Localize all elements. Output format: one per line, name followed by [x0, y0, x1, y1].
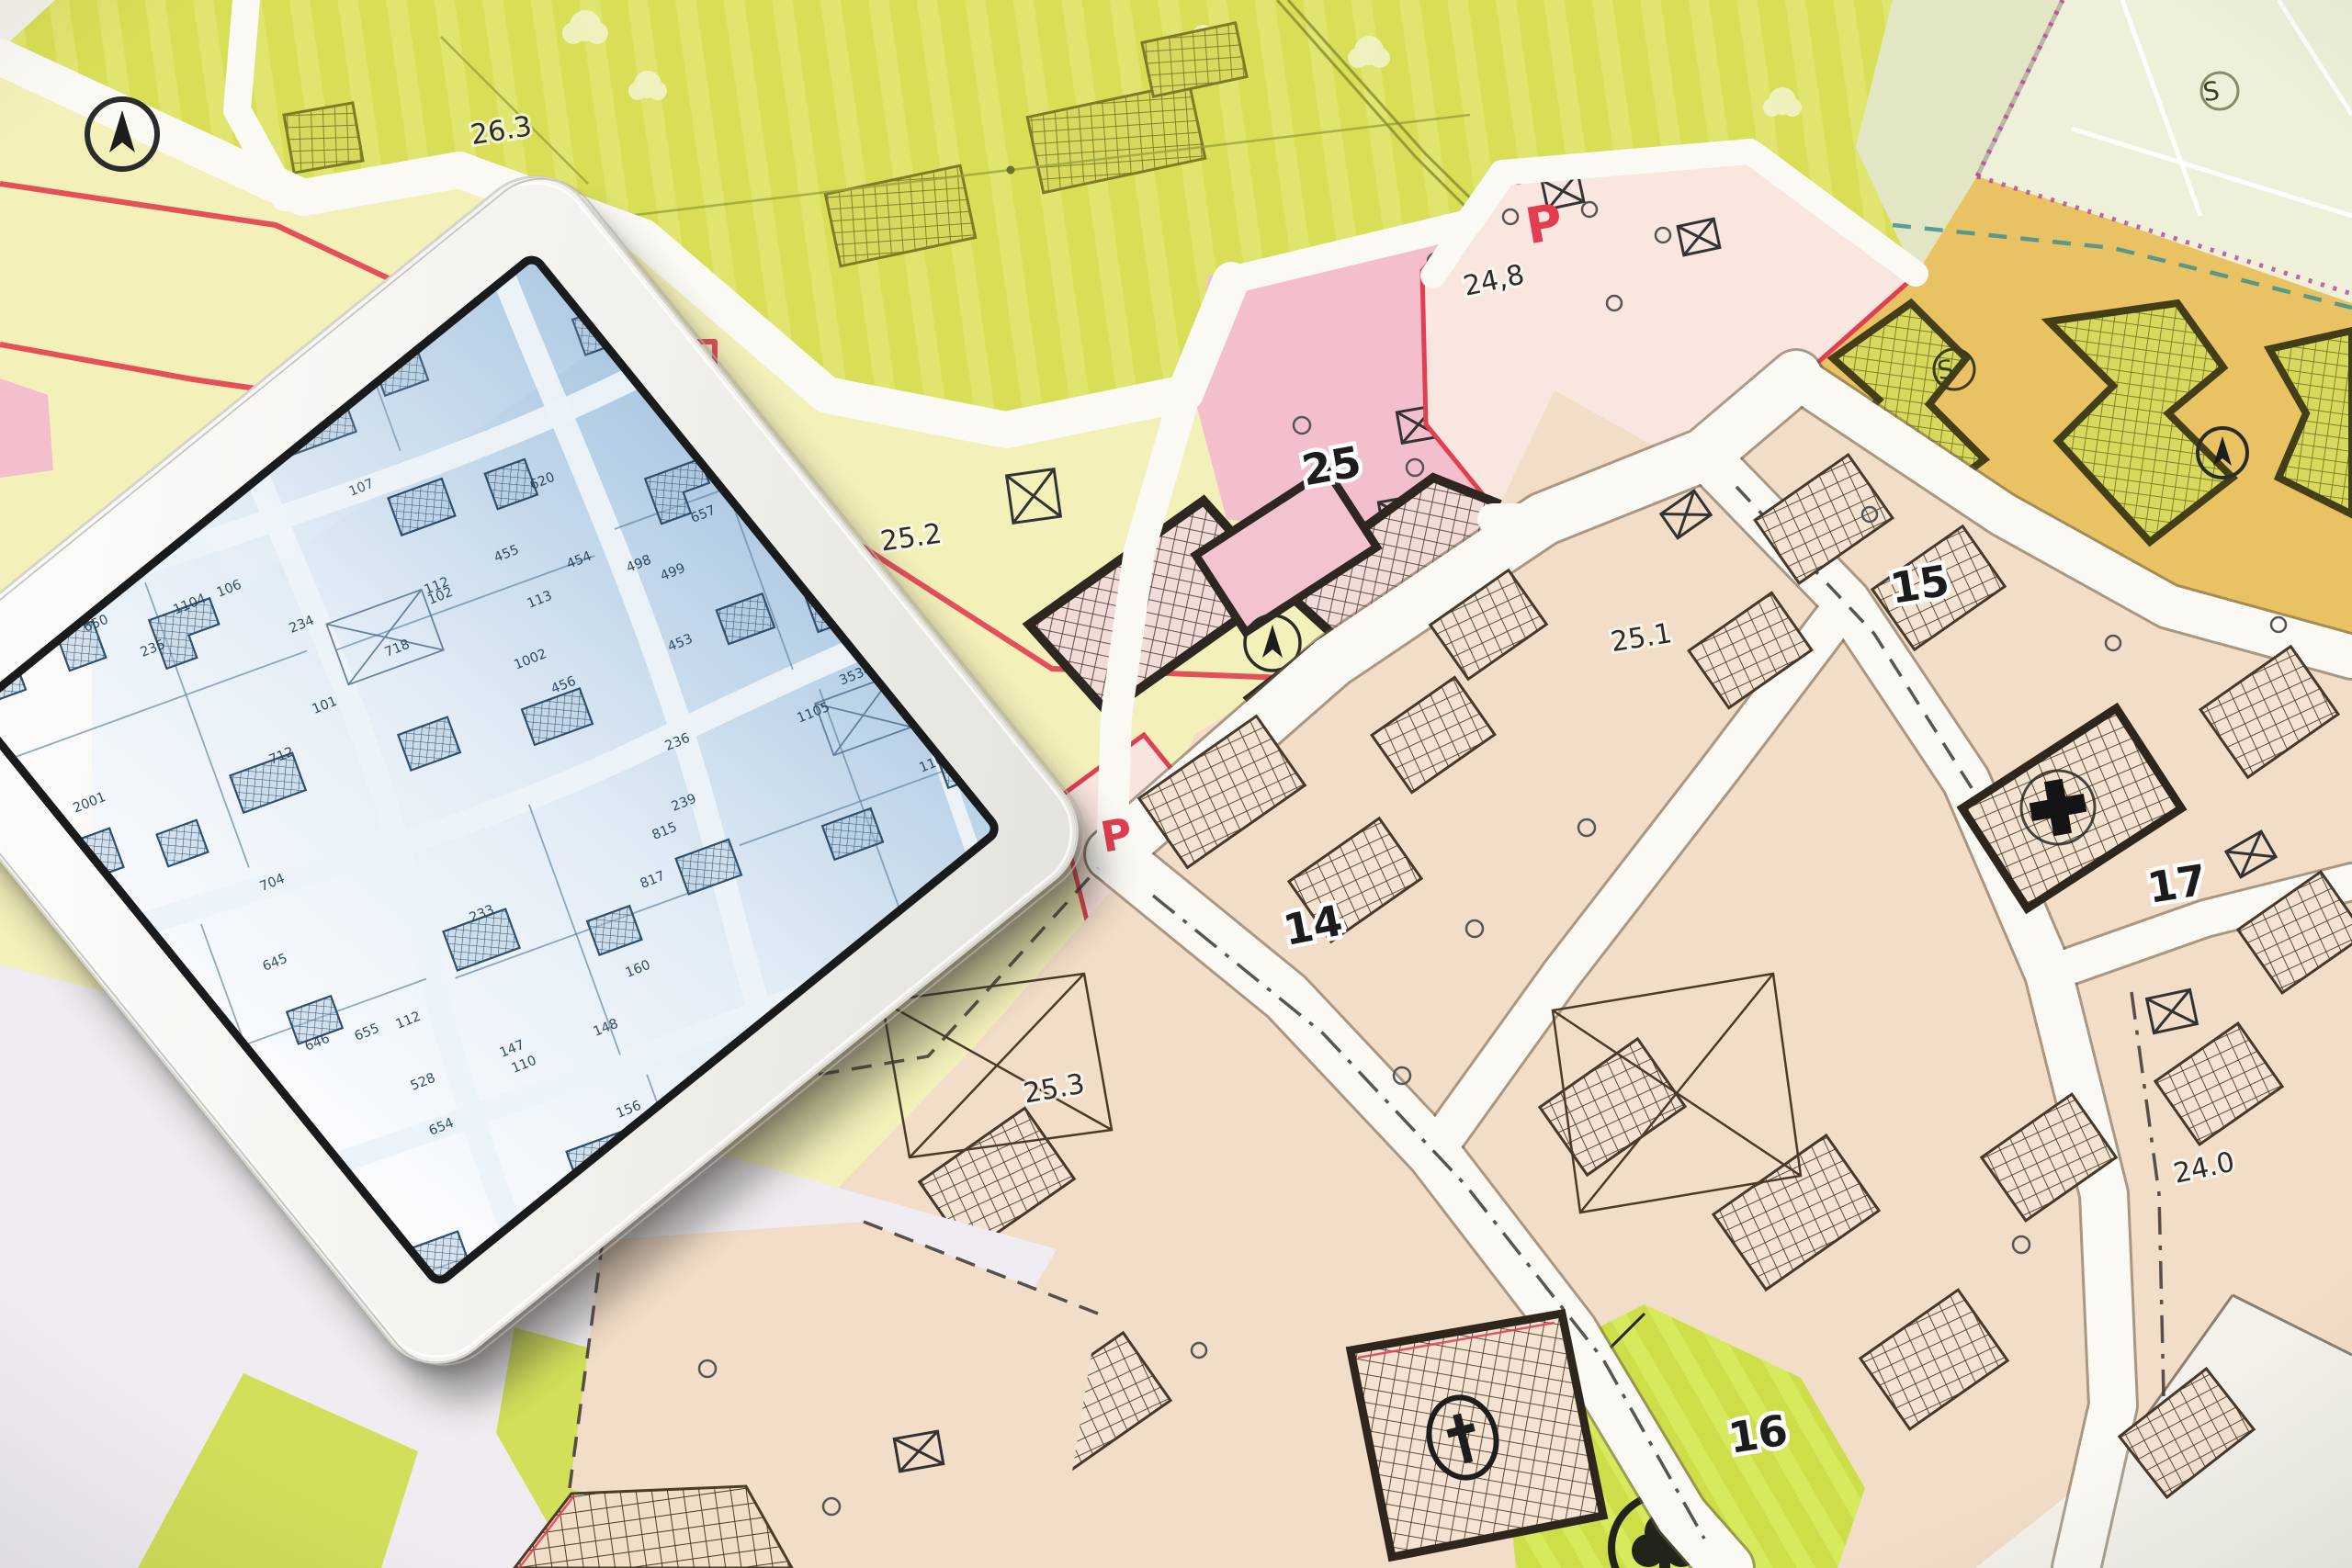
scene-canvas: 2515171416 26.325.224,825.124.025.3 PPSS [0, 0, 2352, 1568]
photo-tablet-on-cadastral-maps: 2515171416 26.325.224,825.124.025.3 PPSS [0, 0, 2352, 1568]
photo-vignette [0, 0, 2352, 1568]
